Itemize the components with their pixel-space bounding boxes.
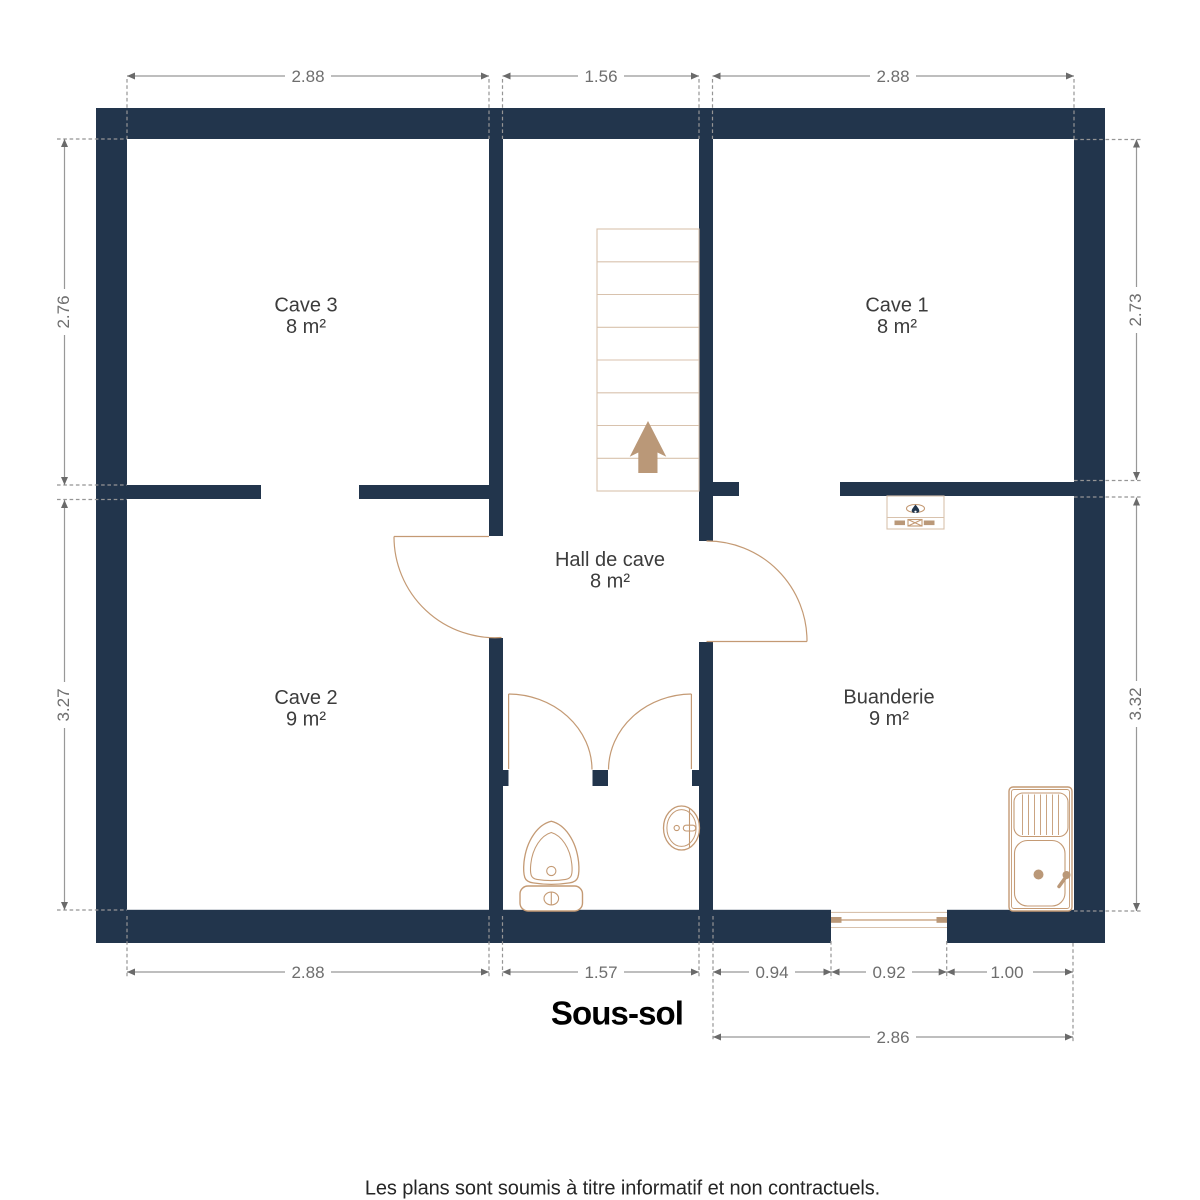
svg-text:0.92: 0.92 — [872, 963, 905, 982]
svg-text:9 m²: 9 m² — [869, 708, 909, 730]
svg-text:Sous-sol: Sous-sol — [551, 995, 683, 1032]
svg-text:1.00: 1.00 — [990, 963, 1023, 982]
svg-text:Hall de cave: Hall de cave — [555, 549, 665, 571]
svg-text:8 m²: 8 m² — [590, 571, 630, 593]
svg-text:2.88: 2.88 — [876, 67, 909, 86]
svg-text:8 m²: 8 m² — [877, 316, 917, 338]
svg-text:2.88: 2.88 — [291, 67, 324, 86]
svg-text:Cave 1: Cave 1 — [865, 295, 928, 317]
svg-text:2.86: 2.86 — [876, 1028, 909, 1047]
svg-text:0.94: 0.94 — [755, 963, 788, 982]
svg-text:1.56: 1.56 — [584, 67, 617, 86]
svg-text:Buanderie: Buanderie — [843, 687, 934, 709]
svg-text:3.32: 3.32 — [1126, 687, 1145, 720]
svg-text:8 m²: 8 m² — [286, 316, 326, 338]
svg-text:Les plans sont soumis à titre: Les plans sont soumis à titre informatif… — [365, 1178, 880, 1200]
svg-text:1.57: 1.57 — [584, 963, 617, 982]
svg-text:2.76: 2.76 — [54, 295, 73, 328]
svg-text:Cave 2: Cave 2 — [274, 687, 337, 709]
svg-text:9 m²: 9 m² — [286, 709, 326, 731]
svg-text:Cave 3: Cave 3 — [274, 295, 337, 317]
svg-text:2.73: 2.73 — [1126, 293, 1145, 326]
svg-text:3.27: 3.27 — [54, 688, 73, 721]
svg-text:2.88: 2.88 — [291, 963, 324, 982]
